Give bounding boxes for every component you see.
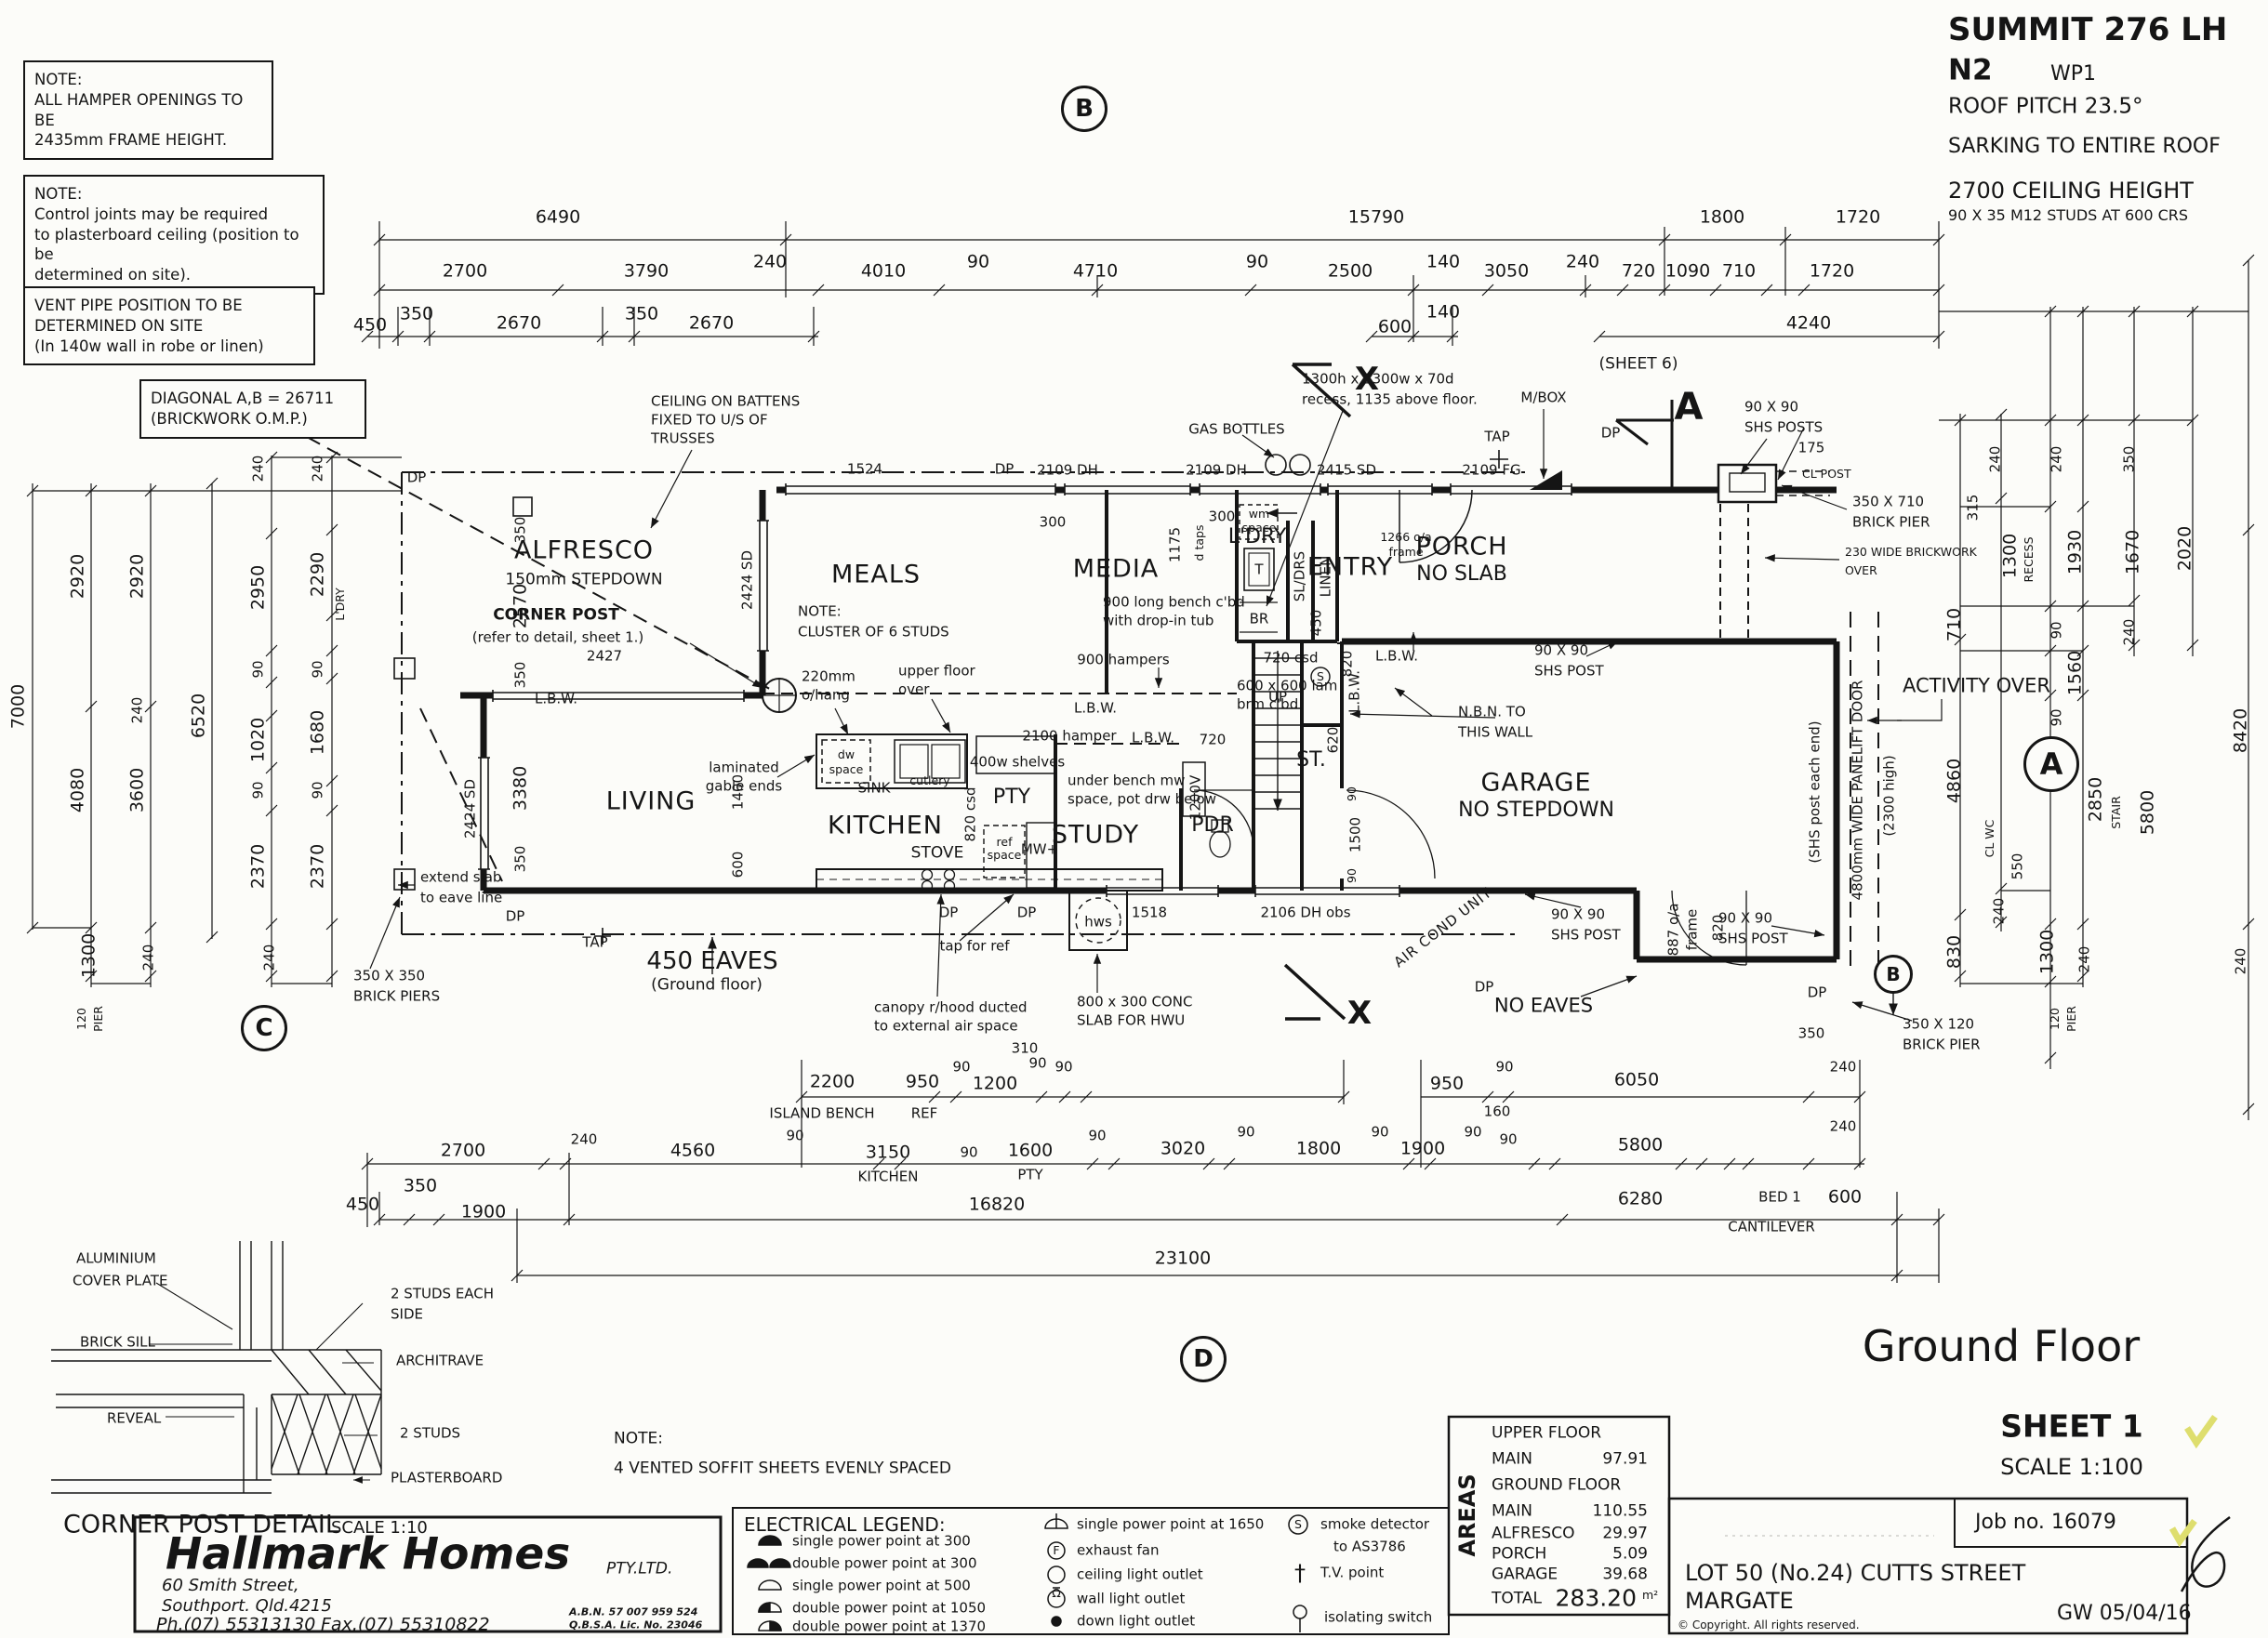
window-label: 2106 DH obs xyxy=(1260,906,1350,920)
shs-ends-note: (SHS post each end) xyxy=(1809,720,1823,863)
dim-caption: ISLAND BENCH xyxy=(769,1107,874,1121)
dim: 1300 xyxy=(2039,930,2057,974)
detail-label: COVER PLATE xyxy=(73,1275,167,1288)
dim: 450 xyxy=(353,317,387,335)
sink-label: SINK xyxy=(857,782,890,796)
brick-pier-note: 350 X 120 xyxy=(1903,1018,1974,1032)
door-frame-note: 1266 o/a xyxy=(1380,532,1431,544)
note-line: 2435mm FRAME HEIGHT. xyxy=(34,130,262,151)
dim: 90 xyxy=(1464,1126,1481,1140)
corner-post-ref: (refer to detail, sheet 1.) xyxy=(472,631,643,645)
dim: 90 xyxy=(2050,708,2064,726)
tub-label: T xyxy=(1254,563,1263,577)
hamper-note: 2100 hamper xyxy=(1022,730,1116,744)
dim: 2370 xyxy=(310,844,327,889)
dim-caption: REF xyxy=(911,1107,938,1121)
dim: 350 xyxy=(514,846,528,873)
dim: 4860 xyxy=(1946,759,1964,803)
note-line: (In 140w wall in robe or linen) xyxy=(34,337,304,357)
dim: 90 xyxy=(1499,1133,1517,1147)
conc-slab-note: SLAB FOR HWU xyxy=(1077,1014,1185,1028)
dim: 4560 xyxy=(670,1143,715,1160)
csd-note: 720 csd xyxy=(1264,652,1319,666)
tap-label: TAP xyxy=(582,936,607,950)
legend-item: smoke detector xyxy=(1320,1518,1429,1532)
areas-row-value: 97.91 xyxy=(1602,1452,1648,1468)
dim: 240 xyxy=(2235,948,2248,975)
gas-bottles-label: GAS BOTTLES xyxy=(1188,423,1284,437)
dim: 3600 xyxy=(129,768,147,812)
dim: 830 xyxy=(1946,935,1964,969)
dim: 2570 xyxy=(512,584,530,628)
wall-light-icon: Ω xyxy=(1052,1588,1061,1600)
legend-item: double power point at 1370 xyxy=(792,1620,986,1634)
shelves-note: 400w shelves xyxy=(970,756,1065,770)
areas-section: GROUND FLOOR xyxy=(1492,1478,1621,1494)
detail-label: REVEAL xyxy=(107,1412,161,1426)
dim: 5800 xyxy=(1618,1137,1663,1155)
extend-slab-note: to eave line xyxy=(420,892,502,905)
window-label: 2424 SD xyxy=(464,779,478,839)
dim: 1020 xyxy=(250,718,268,762)
detail-label: BRICK SILL xyxy=(80,1336,155,1350)
dim: 1680 xyxy=(310,710,327,755)
dim: 240 xyxy=(1993,898,2007,925)
detail-label: ALUMINIUM xyxy=(76,1252,156,1266)
legend-item: wall light outlet xyxy=(1077,1592,1185,1606)
legend-item: to AS3786 xyxy=(1333,1540,1406,1554)
dim: 1300 xyxy=(2002,534,2020,578)
dim: 3020 xyxy=(1161,1141,1205,1158)
dim: 90 xyxy=(1495,1061,1513,1075)
note-heading: NOTE: xyxy=(614,1432,663,1447)
cluster-studs-note: CLUSTER OF 6 STUDS xyxy=(798,626,949,640)
shs-post-note: 90 X 90 xyxy=(1718,912,1772,926)
note-line: Control joints may be required xyxy=(34,205,313,225)
dim: 1670 xyxy=(2125,530,2142,575)
dim: 1175 xyxy=(1169,527,1183,562)
dim: 350 xyxy=(2123,446,2137,473)
dim: 350 xyxy=(1798,1027,1825,1041)
room-label-kitchen: KITCHEN xyxy=(828,813,943,839)
shs-post-note: 90 X 90 xyxy=(1534,644,1588,658)
window-label: 1518 xyxy=(1132,906,1167,920)
dim: 2920 xyxy=(70,554,87,599)
note-heading: NOTE: xyxy=(34,70,262,90)
dim: 23100 xyxy=(1155,1250,1211,1268)
dim: 120 xyxy=(76,1008,88,1030)
dp-label: DP xyxy=(506,910,525,924)
sarking-note: SARKING TO ENTIRE ROOF xyxy=(1948,137,2221,157)
dim: 2670 xyxy=(689,315,734,333)
window-label: 2109 FG xyxy=(1462,464,1520,478)
dim: L'DRY xyxy=(335,588,347,621)
detail-label: 2 STUDS EACH xyxy=(391,1288,494,1301)
areas-row-value: 29.97 xyxy=(1602,1526,1648,1542)
dim: 600 xyxy=(1378,319,1412,337)
tap-ref-note: tap for ref xyxy=(939,940,1009,954)
areas-section: UPPER FLOOR xyxy=(1492,1426,1601,1442)
dim: 600 xyxy=(1828,1189,1862,1207)
ceiling-battens-note: FIXED TO U/S OF xyxy=(651,414,768,428)
dim: 4010 xyxy=(861,263,906,281)
dim: 240 xyxy=(131,697,145,724)
no-eaves-note: NO EAVES xyxy=(1494,997,1593,1016)
stove-label: STOVE xyxy=(911,846,964,862)
note-diagonal: DIAGONAL A,B = 26711 (BRICKWORK O.M.P.) xyxy=(139,379,366,439)
panelift-height: (2300 high) xyxy=(1883,755,1897,836)
dim: 1720 xyxy=(1836,209,1880,227)
gable-note: laminated xyxy=(709,761,778,775)
areas-side-label: AREAS xyxy=(1456,1473,1479,1556)
areas-total-value: 283.20 xyxy=(1556,1587,1637,1610)
plan-linework xyxy=(0,0,2268,1638)
dim: 2290 xyxy=(310,552,327,597)
extend-slab-note: extend slab xyxy=(420,871,501,885)
company-phone: Ph.(07) 55313130 xyxy=(156,1617,315,1634)
tv-point-icon: † xyxy=(1294,1562,1306,1584)
dim: 90 xyxy=(312,660,325,678)
wm-space-label: wm xyxy=(1249,509,1269,521)
dp-label: DP xyxy=(1017,906,1037,920)
dw-space-label: space xyxy=(829,764,864,776)
dim: 90 xyxy=(1054,1061,1072,1075)
dim: 310 xyxy=(1012,1042,1039,1056)
ceiling-battens-note: TRUSSES xyxy=(651,432,715,446)
dim-caption: PTY xyxy=(1017,1169,1042,1182)
dp-label: DP xyxy=(1601,427,1621,441)
dim: 90 xyxy=(252,781,266,799)
dim: STAIR xyxy=(2111,796,2123,829)
dim: 2700 xyxy=(441,1143,485,1160)
dim: 300 xyxy=(1040,516,1067,530)
dp-label: DP xyxy=(1475,981,1494,995)
drawn-date: GW 05/04/16 xyxy=(2057,1604,2192,1624)
panelift-note: 4800mm WIDE PANELIFT DOOR xyxy=(1851,680,1865,901)
gable-note: gable ends xyxy=(706,780,782,794)
wm-space-label: space xyxy=(1242,522,1277,535)
dim-caption: KITCHEN xyxy=(858,1170,919,1184)
areas-row-name: MAIN xyxy=(1492,1504,1532,1520)
activity-over-note: ACTIVITY OVER xyxy=(1903,677,2050,696)
bench-note: 900 long bench c'bd xyxy=(1103,596,1245,610)
tap-label: TAP xyxy=(1484,430,1509,444)
company-fax: Fax.(07) 55310822 xyxy=(321,1617,490,1634)
room-label-pty: PTY xyxy=(993,787,1030,808)
dim: 710 xyxy=(1946,608,1964,641)
room-label-garage: GARAGE xyxy=(1480,771,1591,796)
lbw-label: L.B.W. xyxy=(1132,732,1174,746)
dim: 140 xyxy=(1426,254,1460,271)
legend-item: T.V. point xyxy=(1320,1566,1384,1580)
dim: 240 xyxy=(2050,446,2064,473)
dim: CL WC xyxy=(1984,820,1996,858)
dim: 315 xyxy=(1967,495,1981,522)
brick-pier-note: BRICK PIER xyxy=(1903,1038,1981,1052)
dim: 240 xyxy=(142,944,156,971)
overhang-note: 220mm xyxy=(802,670,855,684)
section-marker-a: A xyxy=(2023,736,2079,792)
dim: 240 xyxy=(263,944,277,971)
note-line: determined on site). xyxy=(34,265,313,285)
dim: 1300 xyxy=(81,933,99,978)
note-heading: NOTE: xyxy=(798,605,842,619)
dim: 90 xyxy=(786,1129,803,1143)
door-frame-note: 887 o/a xyxy=(1667,904,1681,957)
dim: RECESS xyxy=(2023,536,2036,582)
dim: 4240 xyxy=(1786,315,1831,333)
hws-label: hws xyxy=(1084,916,1112,930)
detail-label: ARCHITRAVE xyxy=(396,1354,484,1368)
dim: 240 xyxy=(1989,446,2003,473)
model-name: SUMMIT 276 LH xyxy=(1948,14,2227,46)
room-label-alfresco: ALFRESCO xyxy=(514,538,654,563)
legend-item: single power point at 500 xyxy=(792,1579,971,1593)
lbw-label: L.B.W. xyxy=(1074,702,1117,716)
dim: 90 xyxy=(1246,254,1268,271)
dim: 1930 xyxy=(2067,530,2085,575)
dim: 90 xyxy=(1237,1126,1254,1140)
areas-row-name: PORCH xyxy=(1492,1547,1546,1563)
soffit-note: 4 VENTED SOFFIT SHEETS EVENLY SPACED xyxy=(614,1461,951,1477)
dim: 240 xyxy=(1830,1120,1857,1134)
garage-no-stepdown: NO STEPDOWN xyxy=(1458,800,1614,821)
dim: 140 xyxy=(1426,304,1460,322)
note-line: (BRICKWORK O.M.P.) xyxy=(151,409,355,429)
dim: 16820 xyxy=(969,1196,1025,1214)
conc-slab-note: 800 x 300 CONC xyxy=(1077,996,1192,1010)
shs-post-note: SHS POST xyxy=(1551,929,1621,943)
dim: 90 xyxy=(1088,1129,1106,1143)
canopy-note: to external air space xyxy=(874,1020,1018,1034)
floor-plan-sheet: B C D A B (SHEET 6) A X X SUMMIT 276 LH … xyxy=(0,0,2268,1638)
note-control-joints: NOTE: Control joints may be required to … xyxy=(23,175,325,295)
smoke-detector-icon: S xyxy=(1317,671,1324,683)
detail-label: 2 STUDS xyxy=(400,1427,460,1441)
section-marker-c: C xyxy=(241,1005,287,1051)
dim-caption: CANTILEVER xyxy=(1728,1221,1815,1235)
recess-note: 1300h x 1300w x 70d xyxy=(1302,373,1454,387)
dim: 2850 xyxy=(2088,777,2105,822)
dim: 90 xyxy=(960,1146,977,1160)
up-label: UP xyxy=(1268,691,1287,705)
areas-row-value: 5.09 xyxy=(1612,1547,1648,1563)
dp-label: DP xyxy=(995,463,1015,477)
dim: 90 xyxy=(1346,868,1359,883)
dim: 550 xyxy=(2011,853,2025,880)
room-label-st: ST. xyxy=(1296,750,1326,771)
br-label: BR xyxy=(1250,613,1269,627)
dim: 1720 xyxy=(1810,263,1854,281)
legend-title: ELECTRICAL LEGEND: xyxy=(744,1515,946,1534)
upper-floor-note: over xyxy=(898,683,929,697)
dim: 8420 xyxy=(2233,708,2250,753)
note-heading: NOTE: xyxy=(34,184,313,205)
dim: 350 xyxy=(400,306,433,324)
shs-post-note: 90 X 90 xyxy=(1551,908,1605,922)
dim: 720 xyxy=(1200,733,1227,747)
sheet-scale: SCALE 1:100 xyxy=(2000,1456,2143,1478)
legend-item: isolating switch xyxy=(1324,1611,1432,1625)
window-label: 2109 DH xyxy=(1186,464,1247,478)
areas-total-label: TOTAL xyxy=(1492,1592,1542,1607)
company-abn: A.B.N. 57 007 959 524 xyxy=(569,1607,697,1618)
dim: 1090 xyxy=(1665,263,1710,281)
cutlery-label: cutlery xyxy=(909,775,949,787)
dim: 3380 xyxy=(512,766,530,811)
dim: 240 xyxy=(1566,254,1599,271)
section-letter-a: A xyxy=(1675,389,1704,426)
dim: 15790 xyxy=(1348,209,1404,227)
cl-post-label: CL POST xyxy=(1802,469,1851,481)
ref-space-label: space xyxy=(988,850,1022,862)
areas-row-value: 39.68 xyxy=(1602,1567,1648,1583)
sheet-number: SHEET 1 xyxy=(2000,1411,2142,1442)
dim: 240 xyxy=(252,456,266,482)
dim: 6280 xyxy=(1618,1191,1663,1209)
dim: 2920 xyxy=(129,554,147,599)
room-label-meals: MEALS xyxy=(831,562,921,588)
dim: 350 xyxy=(404,1178,437,1195)
dim: 950 xyxy=(906,1074,939,1091)
dim: 2500 xyxy=(1328,263,1373,281)
dim: 720 xyxy=(1622,263,1655,281)
note-vent-pipe: VENT PIPE POSITION TO BE DETERMINED ON S… xyxy=(23,286,315,365)
dim: 2370 xyxy=(250,844,268,889)
job-number: Job no. 16079 xyxy=(1975,1513,2116,1533)
dim: 90 xyxy=(1028,1057,1046,1071)
dim: 6490 xyxy=(536,209,580,227)
csd-note: 820 csd xyxy=(964,787,978,842)
dim: 3050 xyxy=(1484,263,1529,281)
dim: 1800 xyxy=(1700,209,1744,227)
areas-row-name: ALFRESCO xyxy=(1492,1526,1574,1542)
window-label: 2424 SD xyxy=(741,550,755,610)
meter-box-label: M/BOX xyxy=(1520,391,1566,405)
door-frame-note: frame xyxy=(1686,909,1700,950)
dim: 300 xyxy=(1209,510,1236,524)
lbw-label: L.B.W. xyxy=(535,693,577,707)
ceiling-battens-note: CEILING ON BATTENS xyxy=(651,395,800,409)
brickwork-note: OVER xyxy=(1845,565,1877,577)
dim: 6050 xyxy=(1614,1072,1659,1090)
dim: 820 xyxy=(1341,651,1355,678)
dim: 450 xyxy=(1310,610,1324,637)
dim: 90 xyxy=(952,1061,970,1075)
sheet-title: Ground Floor xyxy=(1863,1325,2140,1367)
brick-piers-note: BRICK PIERS xyxy=(353,990,440,1004)
company-licence: Q.B.S.A. Lic. No. 23046 xyxy=(569,1620,702,1631)
dp-label: DP xyxy=(939,906,959,920)
dw-space-label: dw xyxy=(838,749,855,761)
sliding-doors-label: SL/DRS xyxy=(1293,551,1307,601)
note-line: DETERMINED ON SITE xyxy=(34,316,304,337)
note-line: ALL HAMPER OPENINGS TO BE xyxy=(34,90,262,131)
hampers-note: 900 hampers xyxy=(1077,654,1169,667)
brickwork-note: 230 WIDE BRICKWORK xyxy=(1845,547,1977,559)
dim: 90 xyxy=(1371,1126,1388,1140)
dim: 3790 xyxy=(624,263,669,281)
recess-note: recess, 1135 above floor. xyxy=(1302,393,1478,407)
dim: 1900 xyxy=(461,1204,506,1222)
legend-item: single power point at 300 xyxy=(792,1535,971,1549)
company-address: Southport. Qld.4215 xyxy=(162,1598,332,1615)
canopy-note: canopy r/hood ducted xyxy=(874,1001,1028,1015)
dim: 1800 xyxy=(1296,1141,1341,1158)
dim: 620 xyxy=(1327,727,1341,754)
note-line: to plasterboard ceiling (position to be xyxy=(34,225,313,266)
dim: 175 xyxy=(1798,442,1825,456)
window-label: 2109 DH xyxy=(1037,464,1098,478)
dim: 2020 xyxy=(2177,526,2195,571)
dim: 7000 xyxy=(10,684,28,729)
dim: 240 xyxy=(2123,619,2137,646)
d-taps-label: d taps xyxy=(1194,525,1206,561)
ref-space-label: ref xyxy=(997,837,1013,849)
site-suburb: MARGATE xyxy=(1685,1590,1794,1612)
note-line: DIAGONAL A,B = 26711 xyxy=(151,389,355,409)
dim: 240 xyxy=(312,456,325,482)
company-type: PTY.LTD. xyxy=(606,1562,672,1578)
areas-row-name: MAIN xyxy=(1492,1452,1532,1468)
wp-code: WP1 xyxy=(2050,64,2096,85)
areas-row-value: 110.55 xyxy=(1593,1504,1648,1520)
areas-row-name: GARAGE xyxy=(1492,1567,1558,1583)
nbn-note: N.B.N. TO xyxy=(1458,706,1526,720)
linen-label: LINEN xyxy=(1320,556,1333,598)
company-address: 60 Smith Street, xyxy=(162,1578,299,1594)
legend-item: double power point at 300 xyxy=(792,1557,977,1571)
legend-item: single power point at 1650 xyxy=(1077,1518,1264,1532)
areas-unit: m² xyxy=(1642,1590,1658,1602)
dim-caption: BED 1 xyxy=(1758,1191,1801,1205)
eaves-note: (Ground floor) xyxy=(651,978,763,994)
stud-spec: 90 X 35 M12 STUDS AT 600 CRS xyxy=(1948,208,2188,223)
dim: 120 xyxy=(2049,1008,2062,1030)
shs-post-note: SHS POST xyxy=(1534,665,1604,679)
dim: 90 xyxy=(2050,621,2064,639)
dim: 710 xyxy=(1722,263,1756,281)
note-hamper: NOTE: ALL HAMPER OPENINGS TO BE 2435mm F… xyxy=(23,60,273,160)
dim: 1560 xyxy=(2067,651,2085,695)
dim: 5800 xyxy=(2140,790,2157,835)
note-line: VENT PIPE POSITION TO BE xyxy=(34,296,304,316)
dim: 1524 xyxy=(847,463,882,477)
site-address: LOT 50 (No.24) CUTTS STREET xyxy=(1685,1562,2025,1584)
legend-item: double power point at 1050 xyxy=(792,1602,986,1616)
dim: 1600 xyxy=(1008,1143,1053,1160)
overhang-note: o/hang xyxy=(802,689,850,703)
dim: PIER xyxy=(2066,1006,2078,1032)
brick-pier-note: 350 X 710 xyxy=(1852,495,1924,509)
dim: 2700 xyxy=(443,263,487,281)
upper-floor-note: upper floor xyxy=(898,665,975,679)
dp-label: DP xyxy=(407,471,427,485)
dim: 350 xyxy=(625,306,658,324)
porch-no-slab: NO SLAB xyxy=(1416,564,1507,585)
room-label-study: STUDY xyxy=(1052,823,1139,848)
nbn-note: THIS WALL xyxy=(1458,726,1532,740)
section-marker-d: D xyxy=(1180,1336,1227,1382)
shs-post-note: SHS POST xyxy=(1718,932,1788,946)
dim: 2950 xyxy=(250,565,268,610)
dim: 90 xyxy=(1346,786,1359,801)
smoke-detector-icon: S xyxy=(1294,1519,1302,1531)
lbw-label: L.B.W. xyxy=(1375,650,1418,664)
sheet6-ref: (SHEET 6) xyxy=(1599,357,1678,373)
under-bench-note: under bench mw xyxy=(1068,774,1185,788)
dim: 950 xyxy=(1430,1076,1464,1093)
